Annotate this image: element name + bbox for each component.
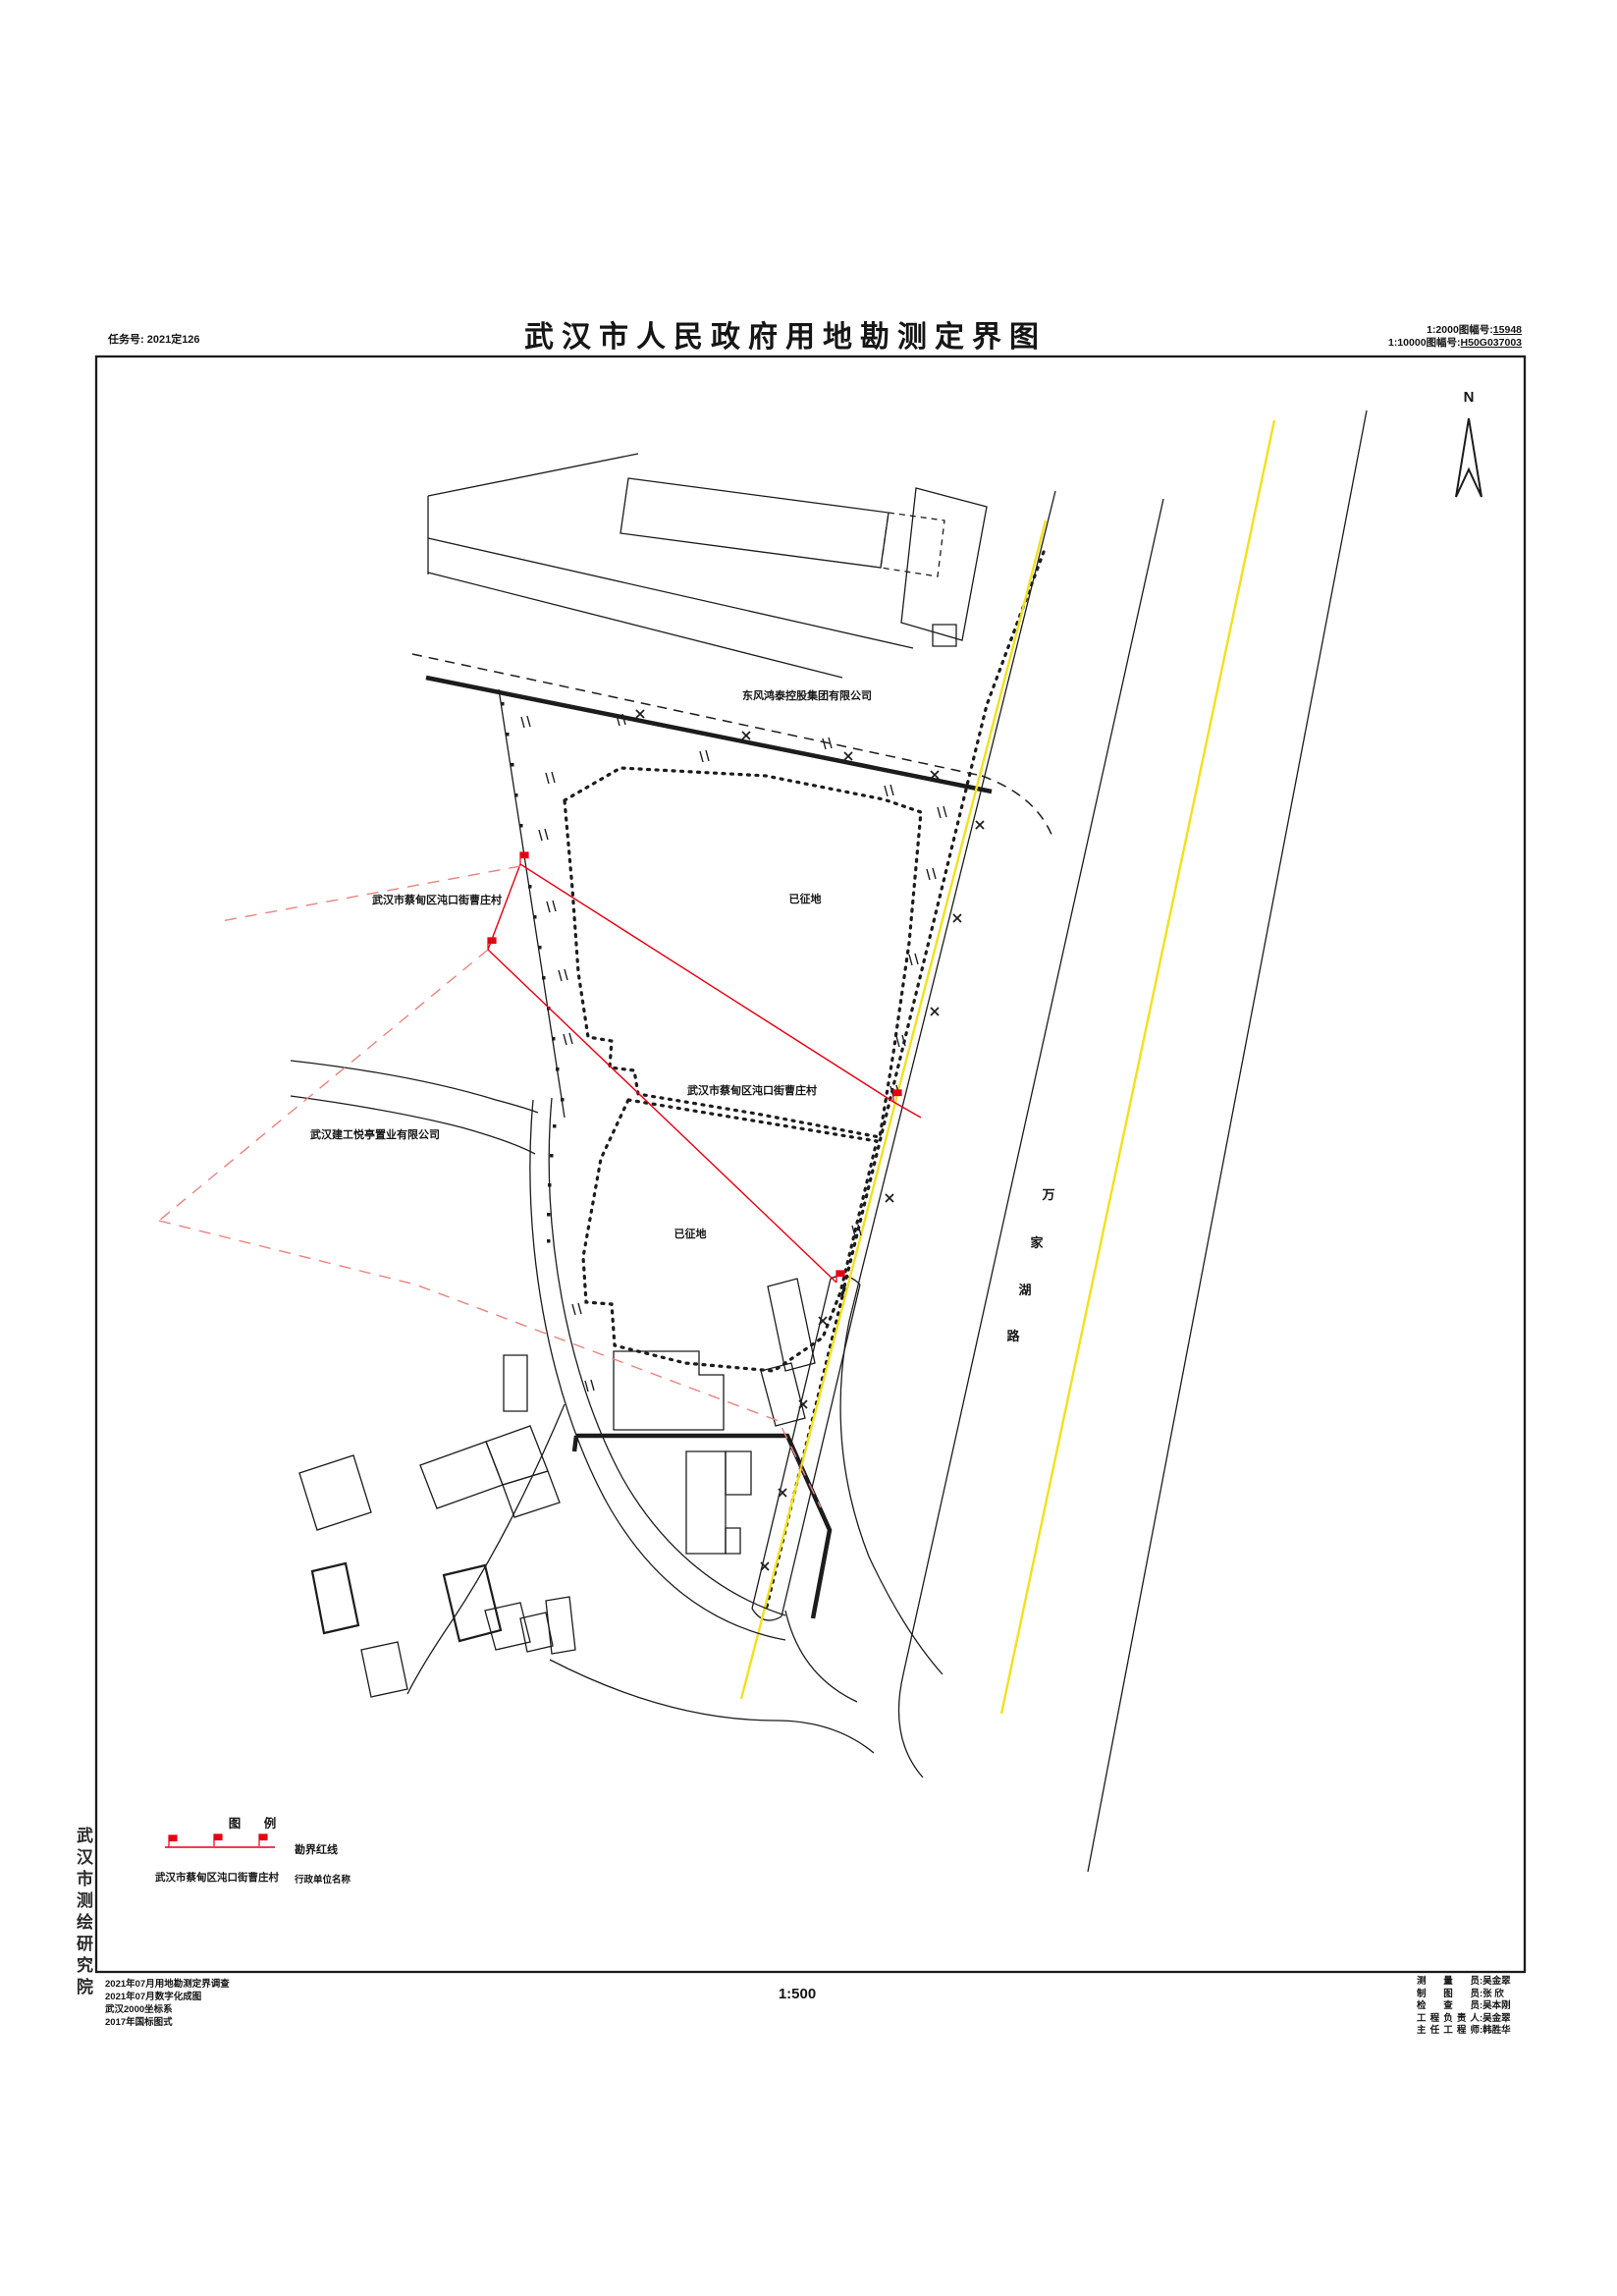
agency-vertical-name: 武汉市测绘研究院	[71, 1827, 95, 1984]
credit-name: 张 欣	[1482, 1989, 1504, 1999]
wanjiahu-road-lines	[741, 410, 1367, 1872]
sheet-10000-label: 1:10000图幅号:	[1388, 337, 1461, 349]
top-parcel-lines	[428, 454, 987, 678]
north-label: N	[1464, 389, 1475, 406]
task-number: 任务号: 2021定126	[108, 331, 200, 347]
thick-boundary-lines	[426, 678, 992, 1618]
credit-row: 制 图 员:张 欣	[1417, 1989, 1511, 2001]
credit-name: 吴本刚	[1482, 2000, 1511, 2011]
note-line: 2021年07月数字化成图	[105, 1991, 230, 2003]
label-area-acquired-1: 已征地	[789, 891, 822, 906]
road-name-char-2: 家	[1030, 1232, 1043, 1251]
north-arrow-icon	[1456, 418, 1482, 497]
credit-row: 工程负责人:吴金翠	[1417, 2013, 1511, 2026]
road-name-char-1: 万	[1042, 1184, 1054, 1203]
land-parallel-marks	[521, 714, 946, 1392]
label-area-acquired-2: 已征地	[674, 1226, 707, 1241]
cadastral-dashed-line	[412, 654, 1052, 837]
credit-name: 韩胜华	[1482, 2025, 1511, 2036]
road-name-char-4: 路	[1006, 1326, 1019, 1344]
label-company-top: 东风鸿泰控股集团有限公司	[742, 687, 872, 703]
building-outlines	[299, 1279, 815, 1697]
legend-title: 图 例	[229, 1813, 286, 1831]
legend-redline-sample	[165, 1834, 275, 1847]
credit-row: 主任工程师:韩胜华	[1417, 2025, 1511, 2038]
sheet-number-10000: 1:10000图幅号:H50G037003	[1388, 335, 1522, 350]
survey-map-page: 任务号: 2021定126 武汉市人民政府用地勘测定界图 1:2000图幅号:1…	[0, 0, 1617, 2296]
credit-row: 测 量 员:吴金翠	[1417, 1976, 1511, 1989]
legend-redline-label: 勘界红线	[295, 1841, 338, 1857]
credit-role: 检 查 员	[1417, 2000, 1480, 2013]
map-frame	[96, 356, 1525, 1972]
credit-role: 测 量 员	[1417, 1976, 1480, 1989]
legend-admin-name-label: 行政单位名称	[295, 1872, 350, 1886]
road-strip-outline	[752, 1276, 860, 1702]
page-title: 武汉市人民政府用地勘测定界图	[524, 312, 1047, 355]
credits-block: 测 量 员:吴金翠 制 图 员:张 欣 检 查 员:吴本刚 工程负责人:吴金翠 …	[1417, 1976, 1511, 2038]
west-boundary-line	[499, 689, 565, 1243]
sheet-10000-number: H50G037003	[1461, 337, 1522, 349]
legend-admin-name: 武汉市蔡甸区沌口街曹庄村	[155, 1870, 279, 1885]
label-company-left: 武汉建工悦亭置业有限公司	[310, 1126, 440, 1142]
credit-role: 工程负责人	[1417, 2013, 1480, 2026]
road-name-char-3: 湖	[1018, 1280, 1031, 1298]
credit-role: 制 图 员	[1417, 1989, 1480, 2001]
credit-row: 检 查 员:吴本刚	[1417, 2000, 1511, 2013]
label-village-left: 武汉市蔡甸区沌口街曹庄村	[372, 892, 502, 907]
note-line: 2017年国标图式	[105, 2016, 230, 2029]
credit-role: 主任工程师	[1417, 2025, 1480, 2038]
survey-notes: 2021年07月用地勘测定界调查 2021年07月数字化成图 武汉2000坐标系…	[105, 1978, 230, 2029]
credit-name: 吴金翠	[1482, 1976, 1511, 1987]
local-road-curves	[291, 1061, 874, 1753]
label-village-center: 武汉市蔡甸区沌口街曹庄村	[687, 1082, 817, 1098]
credit-name: 吴金翠	[1482, 2013, 1511, 2024]
map-scale: 1:500	[779, 1986, 816, 2002]
note-line: 2021年07月用地勘测定界调查	[105, 1978, 230, 1991]
survey-red-lines	[159, 852, 921, 1507]
note-line: 武汉2000坐标系	[105, 2003, 230, 2016]
